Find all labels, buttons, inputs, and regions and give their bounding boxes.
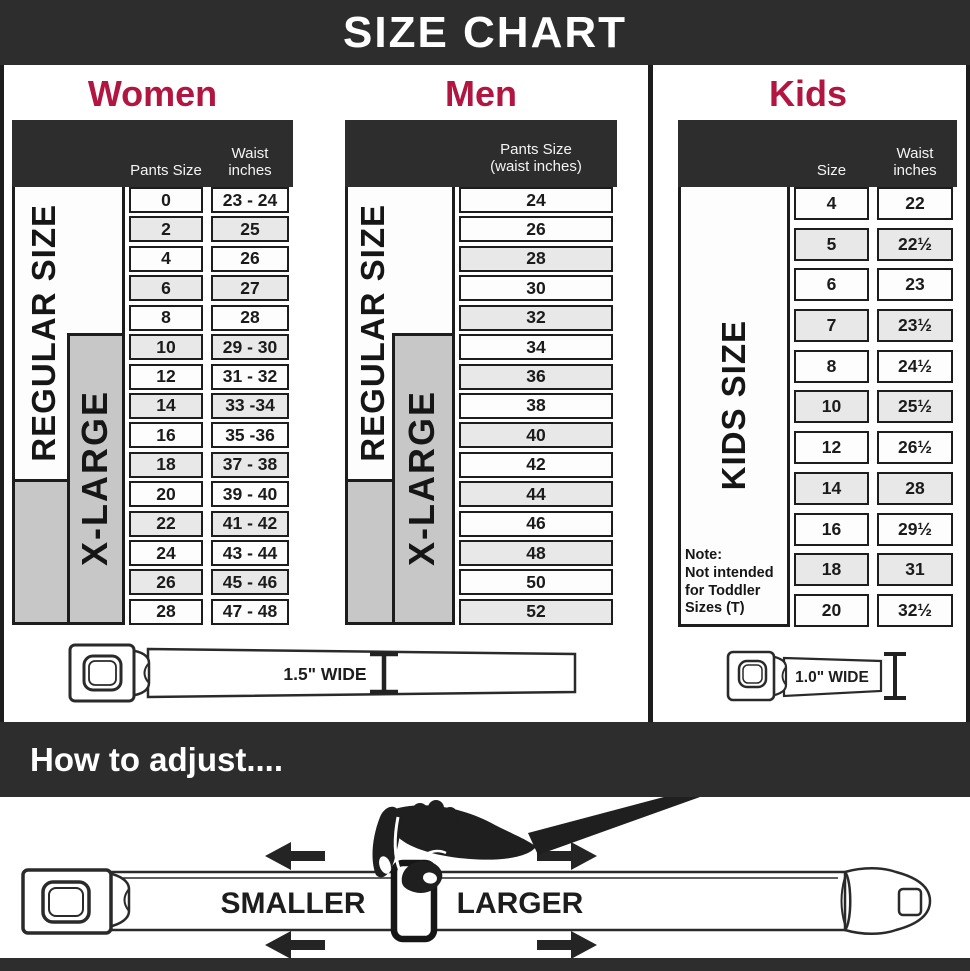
kids-col2-header: Waist inches bbox=[873, 145, 957, 180]
kids-size-cell: 22 bbox=[877, 187, 953, 220]
kids-size-cell: 25½ bbox=[877, 390, 953, 423]
size-chart-poster: SIZE CHART Women Men Kids Pants Size Wai… bbox=[0, 0, 970, 971]
page-title: SIZE CHART bbox=[343, 8, 627, 58]
title-banner: SIZE CHART bbox=[0, 0, 970, 65]
men-size-cell: 48 bbox=[459, 540, 613, 566]
kids-size-cell: 20 bbox=[794, 594, 869, 627]
women-size-cell: 37 - 38 bbox=[211, 452, 289, 478]
kids-note-body: Not intended for Toddler Sizes (T) bbox=[685, 565, 787, 618]
women-pants-size-column: 0246810121416182022242628 bbox=[125, 187, 207, 625]
kids-size-cell: 7 bbox=[794, 309, 869, 342]
kids-waist-column: 2222½2323½24½25½26½2829½3132½ bbox=[873, 187, 957, 627]
women-size-cell: 6 bbox=[129, 275, 203, 301]
men-size-cell: 32 bbox=[459, 305, 613, 331]
kids-size-group-column: KIDS SIZE Note: Not intended for Toddler… bbox=[678, 187, 790, 627]
men-xlarge-label: X-LARGE bbox=[401, 390, 443, 566]
kids-size-cell: 24½ bbox=[877, 350, 953, 383]
bottom-frame-bar bbox=[0, 958, 970, 971]
women-size-cell: 4 bbox=[129, 246, 203, 272]
adjust-banner: How to adjust.... bbox=[0, 722, 970, 797]
kids-size-cell: 14 bbox=[794, 472, 869, 505]
men-heading: Men bbox=[345, 71, 617, 117]
kids-heading: Kids bbox=[658, 71, 958, 117]
smaller-arrow-bottom bbox=[265, 931, 325, 958]
panel-divider bbox=[648, 65, 653, 722]
kids-size-cell: 22½ bbox=[877, 228, 953, 261]
adult-belt-width-label: 1.5" WIDE bbox=[283, 664, 366, 684]
kids-size-table: Size Waist inches KIDS SIZE Note: Not in… bbox=[678, 120, 957, 627]
women-size-cell: 28 bbox=[129, 599, 203, 625]
women-size-cell: 25 bbox=[211, 216, 289, 242]
men-size-cell: 34 bbox=[459, 334, 613, 360]
adjust-illustration: SMALLER LARGER bbox=[0, 797, 970, 958]
women-size-table: Pants Size Waist inches REGULAR SIZE X-L… bbox=[12, 120, 293, 625]
smaller-label: SMALLER bbox=[221, 887, 366, 920]
kids-note-title: Note: bbox=[685, 547, 787, 565]
smaller-arrow-top bbox=[265, 842, 325, 870]
kids-size-cell: 29½ bbox=[877, 513, 953, 546]
kids-size-cell: 23 bbox=[877, 268, 953, 301]
men-col-header: Pants Size (waist inches) bbox=[455, 141, 617, 176]
women-size-cell: 24 bbox=[129, 540, 203, 566]
women-size-cell: 22 bbox=[129, 511, 203, 537]
men-size-cell: 36 bbox=[459, 364, 613, 390]
women-size-cell: 26 bbox=[129, 569, 203, 595]
kids-size-cell: 4 bbox=[794, 187, 869, 220]
kids-size-cell: 12 bbox=[794, 431, 869, 464]
women-size-group-column: REGULAR SIZE X-LARGE bbox=[12, 187, 125, 625]
men-size-table: Pants Size (waist inches) REGULAR SIZE X… bbox=[345, 120, 617, 625]
men-pants-size-column: 242628303234363840424446485052 bbox=[455, 187, 617, 625]
women-size-cell: 8 bbox=[129, 305, 203, 331]
kids-size-cell: 23½ bbox=[877, 309, 953, 342]
kids-width-measure-mark bbox=[884, 654, 906, 698]
women-size-cell: 31 - 32 bbox=[211, 364, 289, 390]
women-size-cell: 47 - 48 bbox=[211, 599, 289, 625]
kids-size-cell: 28 bbox=[877, 472, 953, 505]
adjust-belt-tip-slot bbox=[899, 889, 921, 915]
women-heading: Women bbox=[12, 71, 293, 117]
women-table-header: Pants Size Waist inches bbox=[12, 120, 293, 187]
adjust-heading: How to adjust.... bbox=[30, 741, 283, 779]
women-size-cell: 28 bbox=[211, 305, 289, 331]
women-size-cell: 0 bbox=[129, 187, 203, 213]
women-size-cell: 39 - 40 bbox=[211, 481, 289, 507]
kids-table-header: Size Waist inches bbox=[678, 120, 957, 187]
kids-size-cell: 8 bbox=[794, 350, 869, 383]
women-regular-size-label: REGULAR SIZE bbox=[25, 204, 63, 462]
women-size-cell: 16 bbox=[129, 422, 203, 448]
kids-size-cell: 10 bbox=[794, 390, 869, 423]
men-regular-size-label: REGULAR SIZE bbox=[354, 204, 392, 462]
kids-size-cell: 5 bbox=[794, 228, 869, 261]
women-size-cell: 20 bbox=[129, 481, 203, 507]
men-size-group-column: REGULAR SIZE X-LARGE bbox=[345, 187, 455, 625]
women-size-cell: 2 bbox=[129, 216, 203, 242]
kids-belt-illustration: 1.0" WIDE bbox=[698, 646, 928, 704]
women-size-cell: 27 bbox=[211, 275, 289, 301]
women-waist-column: 23 - 242526272829 - 3031 - 3233 -3435 -3… bbox=[207, 187, 293, 625]
larger-label: LARGER bbox=[457, 887, 584, 920]
men-size-cell: 38 bbox=[459, 393, 613, 419]
men-table-header: Pants Size (waist inches) bbox=[345, 120, 617, 187]
kids-size-cell: 26½ bbox=[877, 431, 953, 464]
men-size-cell: 42 bbox=[459, 452, 613, 478]
women-size-cell: 18 bbox=[129, 452, 203, 478]
men-size-cell: 44 bbox=[459, 481, 613, 507]
women-size-cell: 23 - 24 bbox=[211, 187, 289, 213]
men-size-cell: 26 bbox=[459, 216, 613, 242]
kids-size-cell: 16 bbox=[794, 513, 869, 546]
men-size-cell: 46 bbox=[459, 511, 613, 537]
women-size-cell: 10 bbox=[129, 334, 203, 360]
men-size-cell: 40 bbox=[459, 422, 613, 448]
kids-note: Note: Not intended for Toddler Sizes (T) bbox=[685, 547, 787, 618]
women-xlarge-label: X-LARGE bbox=[74, 390, 116, 566]
women-size-cell: 35 -36 bbox=[211, 422, 289, 448]
women-size-cell: 12 bbox=[129, 364, 203, 390]
men-size-cell: 28 bbox=[459, 246, 613, 272]
women-size-cell: 29 - 30 bbox=[211, 334, 289, 360]
women-size-cell: 45 - 46 bbox=[211, 569, 289, 595]
kids-size-cell: 31 bbox=[877, 553, 953, 586]
kids-col1-header: Size bbox=[790, 162, 873, 180]
kids-size-cell: 32½ bbox=[877, 594, 953, 627]
women-size-cell: 43 - 44 bbox=[211, 540, 289, 566]
kids-size-label: KIDS SIZE bbox=[715, 320, 753, 490]
women-size-cell: 14 bbox=[129, 393, 203, 419]
women-col1-header: Pants Size bbox=[125, 162, 207, 180]
adult-belt-illustration: 1.5" WIDE bbox=[60, 641, 590, 705]
men-size-cell: 30 bbox=[459, 275, 613, 301]
men-size-cell: 24 bbox=[459, 187, 613, 213]
kids-size-cell: 18 bbox=[794, 553, 869, 586]
kids-belt-width-label: 1.0" WIDE bbox=[795, 669, 869, 686]
women-size-cell: 33 -34 bbox=[211, 393, 289, 419]
larger-arrow-bottom bbox=[537, 931, 597, 958]
men-xlarge-lower bbox=[348, 479, 392, 622]
women-col2-header: Waist inches bbox=[207, 145, 293, 180]
women-xlarge-lower bbox=[15, 479, 67, 622]
women-size-cell: 41 - 42 bbox=[211, 511, 289, 537]
women-size-cell: 26 bbox=[211, 246, 289, 272]
kids-size-cell: 6 bbox=[794, 268, 869, 301]
men-size-cell: 50 bbox=[459, 569, 613, 595]
men-size-cell: 52 bbox=[459, 599, 613, 625]
kids-size-column: 45678101214161820 bbox=[790, 187, 873, 627]
